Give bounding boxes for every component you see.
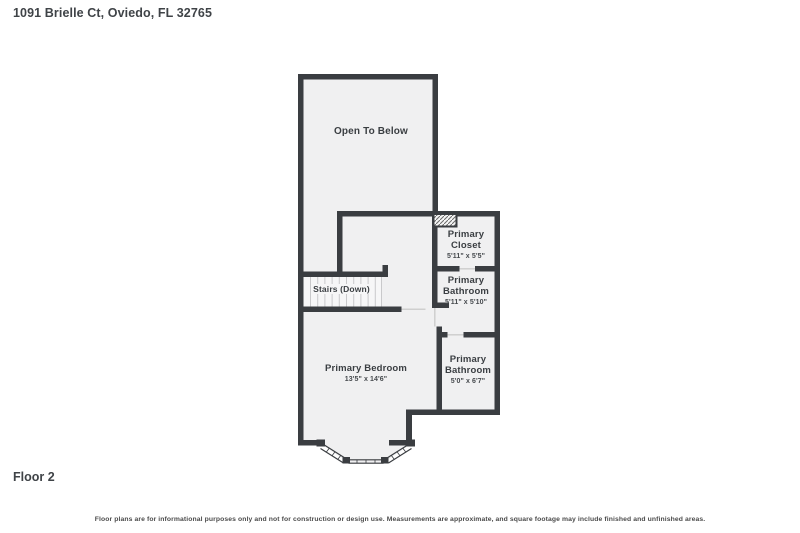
room-dimensions: 13'5" x 14'6" [306, 376, 426, 384]
room-name: Open To Below [311, 127, 431, 138]
room-dimensions: 5'0" x 6'7" [428, 378, 508, 386]
room-name: Primary Bathroom [437, 276, 495, 297]
hatch-feature [434, 214, 457, 227]
room-dimensions: 5'11" x 5'5" [426, 253, 506, 261]
room-label-primary-closet: Primary Closet 5'11" x 5'5" [426, 230, 506, 261]
room-name: Primary Bathroom [439, 355, 497, 376]
room-label-stairs-down: Stairs (Down) [299, 284, 384, 295]
room-label-primary-bathroom-lower: Primary Bathroom 5'0" x 6'7" [428, 355, 508, 386]
disclaimer-text: Floor plans are for informational purpos… [0, 516, 800, 523]
room-name: Stairs (Down) [311, 284, 372, 294]
room-label-primary-bedroom: Primary Bedroom 13'5" x 14'6" [306, 364, 426, 384]
floor-plan [0, 0, 800, 533]
room-name: Primary Bedroom [306, 364, 426, 375]
room-label-primary-bathroom-upper: Primary Bathroom 5'11" x 5'10" [426, 276, 506, 307]
room-label-open-to-below: Open To Below [311, 127, 431, 138]
room-name: Primary Closet [437, 230, 495, 251]
floor-label: Floor 2 [13, 470, 55, 484]
room-dimensions: 5'11" x 5'10" [426, 299, 506, 307]
